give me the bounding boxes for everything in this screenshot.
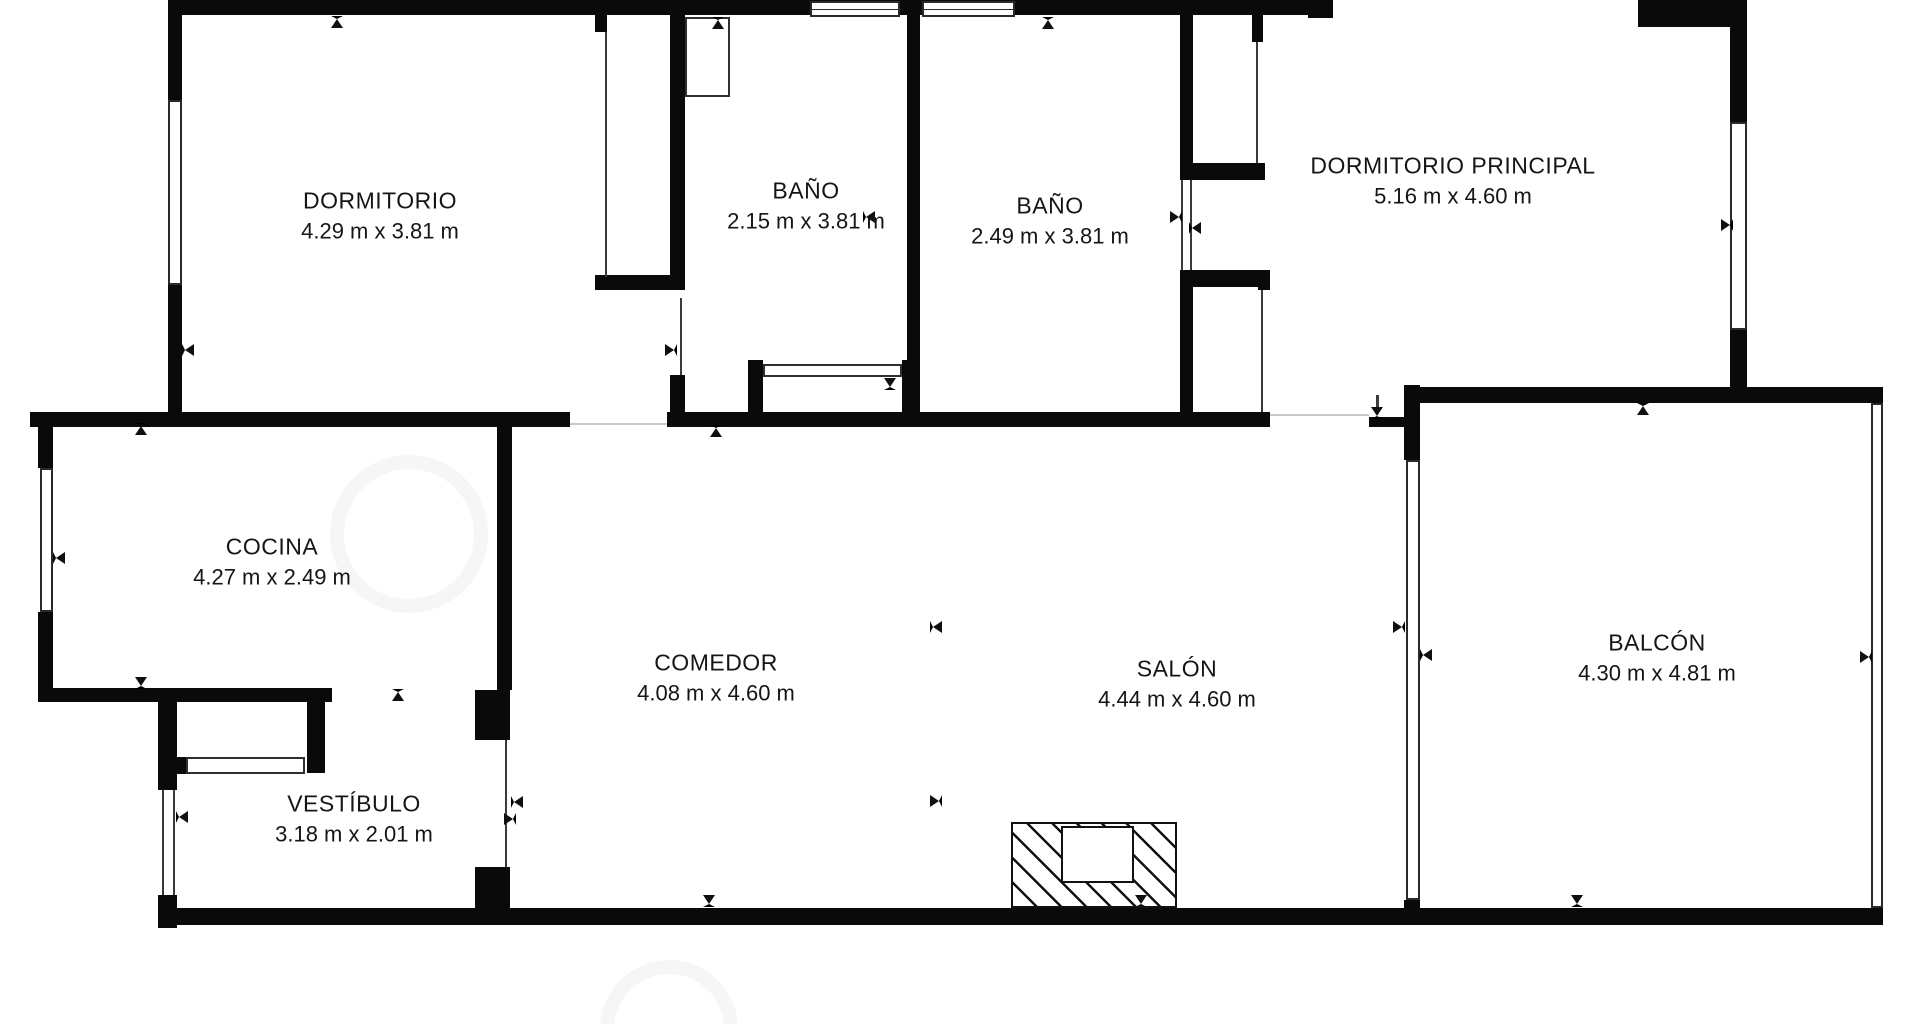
marker-salon-east-icon [1393,621,1405,633]
window-salon-balcony [1406,460,1420,900]
room-dimensions: 4.29 m x 3.81 m [301,217,459,247]
cocina-bottom-wall [38,688,332,702]
room-dimensions: 2.15 m x 3.81 m [727,207,885,237]
marker-cocina-bottom-icon [135,677,147,689]
window-dormitorio-left [168,100,182,285]
west-mid-wall [30,412,570,427]
dp-closet1-front [1256,42,1258,163]
window-mullion [812,9,898,10]
bano1-door-jamb [680,298,682,375]
marker-corridor-opening-icon [710,425,722,437]
room-name: COCINA [193,532,351,563]
room-dimensions: 2.49 m x 3.81 m [971,222,1129,252]
bano1-fixture-box [685,17,730,97]
window-bano2-top [922,1,1015,17]
marker-dp-door-a-icon [1170,211,1182,223]
marker-bano1-door-icon [665,344,677,356]
dp-left-upper [1180,15,1193,180]
window-bano1-top [810,1,900,17]
wardrobe-bottom-wall [595,275,683,290]
center-wall-foot [902,360,920,412]
marker-cocina-top-icon [135,423,147,435]
vestibulo-left-upper [158,700,177,790]
comedor-left-wall [497,412,512,690]
marker-bano1-top-icon [712,17,724,29]
entry-closet-right [307,698,325,773]
room-name: BAÑO [727,176,885,207]
marker-comedor-bottom-icon [703,895,715,907]
marker-bano2-top-icon [1042,17,1054,29]
dp-door-jamb-a [1181,180,1183,270]
marker-cocina-window-icon [53,552,65,564]
bano1-left-wall [670,15,685,290]
bano1-door-lower [670,375,685,412]
corridor-threshold [570,423,667,425]
marker-vest-right-door-b-icon [504,813,516,825]
room-name: VESTÍBULO [275,789,433,820]
marker-dp-entry-icon [1371,407,1383,419]
vest-left-jamb-a [162,790,164,895]
marker-balcon-east-icon [1860,651,1872,663]
vest-door-upper-jamb [475,690,510,740]
room-name: DORMITORIO [301,186,459,217]
room-dimensions: 4.30 m x 4.81 m [1578,659,1736,689]
left-wall-top [168,0,182,100]
room-name: BALCÓN [1578,628,1736,659]
dp-right-upper [1730,27,1747,122]
watermark-fragment [600,960,738,1024]
cocina-left-upper [38,427,53,468]
room-dimensions: 5.16 m x 4.60 m [1310,182,1595,212]
window-mullion [924,9,1013,10]
floor-plan: DORMITORIO 4.29 m x 3.81 m BAÑO 2.15 m x… [0,0,1920,1024]
banos-center-wall [907,15,920,360]
vest-right-jamb [505,740,507,867]
marker-comedor-east-icon [930,621,942,633]
marker-dormitorio-top-icon [331,16,343,28]
room-label-dormitorio: DORMITORIO 4.29 m x 3.81 m [301,186,459,247]
dp-entry-threshold [1270,414,1369,416]
dp-closet2-cap [1258,273,1270,290]
marker-salon-west-icon [930,795,942,807]
wardrobe-front-line [605,32,607,277]
room-label-bano-1: BAÑO 2.15 m x 3.81 m [727,176,885,237]
marker-center-wall-icon [863,211,875,223]
room-dimensions: 4.27 m x 2.49 m [193,563,351,593]
left-wall-bottom [168,285,182,427]
room-dimensions: 3.18 m x 2.01 m [275,820,433,850]
fireplace [1011,822,1177,908]
room-label-cocina: COCINA 4.27 m x 2.49 m [193,532,351,593]
marker-bano1-sill-icon [884,378,896,390]
room-name: BAÑO [971,191,1129,222]
balcony-rail-right [1871,403,1883,908]
top-wall-main [168,0,1333,15]
marker-balcon-west-icon [1420,649,1432,661]
vest-door-lower-jamb [475,867,510,908]
room-label-comedor: COMEDOR 4.08 m x 4.60 m [637,648,795,709]
room-name: SALÓN [1098,654,1256,685]
room-dimensions: 4.44 m x 4.60 m [1098,685,1256,715]
dp-closet2-top [1180,270,1270,287]
balcony-top-wall [1404,387,1883,403]
bottom-wall [158,908,1883,925]
dp-right-lower [1730,330,1747,403]
vest-left-jamb-b [173,790,175,895]
room-label-balcon: BALCÓN 4.30 m x 4.81 m [1578,628,1736,689]
marker-balcony-bottom-icon [1571,895,1583,907]
bano1-sill-band [763,364,902,377]
top-right-block [1638,0,1747,27]
room-label-bano-2: BAÑO 2.49 m x 3.81 m [971,191,1129,252]
marker-dormitorio-left-icon [182,344,194,356]
marker-dp-door-b-icon [1189,222,1201,234]
room-label-dormitorio-principal: DORMITORIO PRINCIPAL 5.16 m x 4.60 m [1310,151,1595,212]
bano1-sill-post [748,360,763,412]
entry-door-box [186,757,305,774]
marker-balcony-top-icon [1637,403,1649,415]
dp-closet1-stub [1252,15,1263,42]
window-cocina-left [40,468,53,612]
dp-closet2-front [1261,290,1263,412]
balcony-left-lower [1404,900,1420,925]
marker-vest-right-door-a-icon [511,796,523,808]
fireplace-inset [1061,826,1134,883]
dp-closet1-bottom [1180,163,1265,180]
top-wall-end-cap [1308,0,1333,18]
room-name: DORMITORIO PRINCIPAL [1310,151,1595,182]
marker-vestibulo-top-icon [392,689,404,701]
dp-left-lower [1180,270,1193,427]
wardrobe-stub-top [595,15,607,32]
room-label-vestibulo: VESTÍBULO 3.18 m x 2.01 m [275,789,433,850]
marker-dp-window-icon [1721,219,1733,231]
room-name: COMEDOR [637,648,795,679]
watermark-fragment [330,455,488,613]
room-label-salon: SALÓN 4.44 m x 4.60 m [1098,654,1256,715]
room-dimensions: 4.08 m x 4.60 m [637,679,795,709]
marker-vest-left-door-icon [176,811,188,823]
